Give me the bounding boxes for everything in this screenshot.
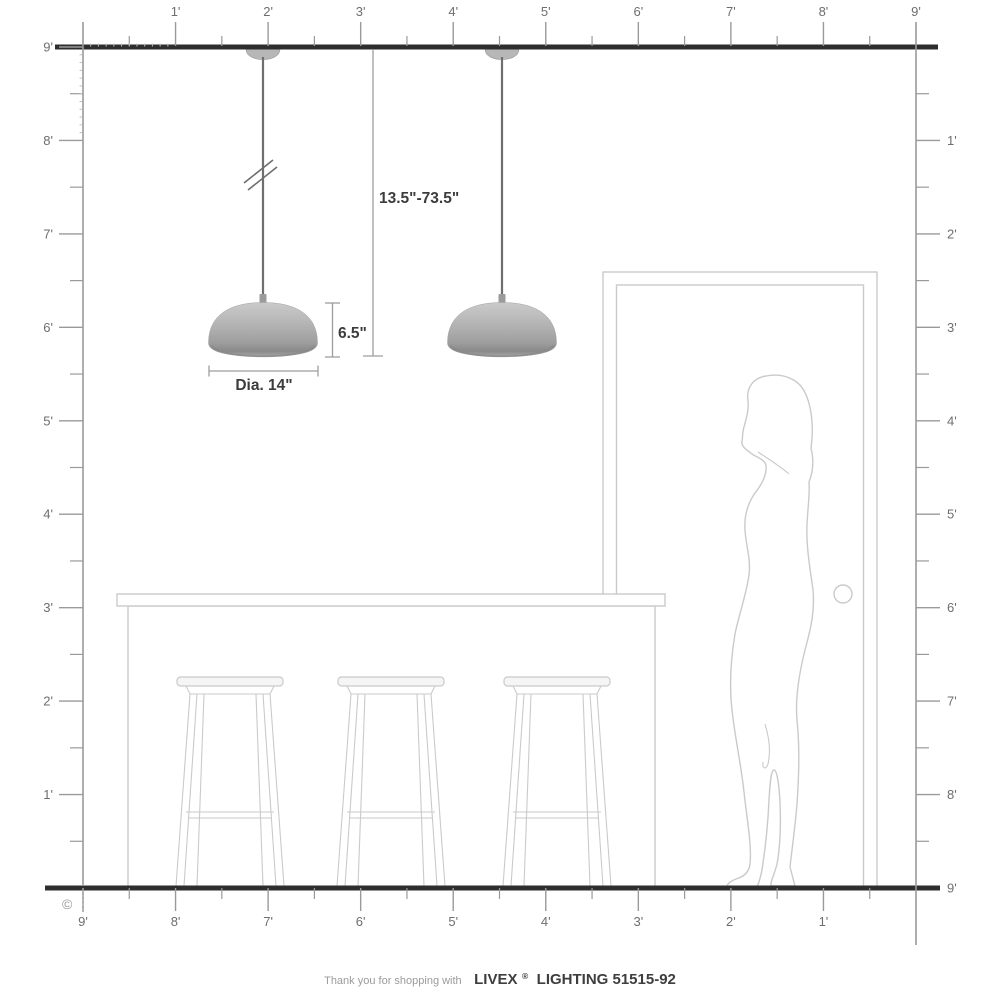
ruler-label: 2' — [263, 4, 273, 19]
product-number: LIGHTING 51515-92 — [537, 971, 676, 988]
ruler-label: 5' — [448, 914, 458, 929]
ruler-label: 8' — [947, 787, 957, 802]
ruler-label: 3' — [43, 600, 53, 615]
ruler-label: 6' — [356, 914, 366, 929]
dimension-diagram-canvas: 13.5"-73.5" 6.5" Dia. 14" 1'2'3'4'5'6'7'… — [0, 0, 1000, 1000]
ruler-label: 6' — [633, 4, 643, 19]
pendant-left — [209, 49, 318, 357]
ruler-label: 2' — [947, 226, 957, 241]
ceiling-line — [55, 45, 938, 50]
ruler-label: 1' — [947, 133, 957, 148]
ruler-label: 9' — [78, 914, 88, 929]
ruler-label: 2' — [726, 914, 736, 929]
ruler-label: 7' — [43, 226, 53, 241]
ruler-label: 2' — [43, 694, 53, 709]
ruler-label: 7' — [263, 914, 273, 929]
shade-diameter-dimension: Dia. 14" — [209, 366, 318, 395]
hang-range-dimension: 13.5"-73.5" — [363, 50, 459, 356]
pendant-right — [448, 49, 557, 357]
caption: Thank you for shopping with LIVEX ® LIGH… — [324, 966, 676, 988]
ruler-label: 3' — [947, 320, 957, 335]
ruler-label: 7' — [726, 4, 736, 19]
ruler-label: 8' — [171, 914, 181, 929]
shade-height-dimension: 6.5" — [325, 303, 367, 357]
registered-mark: ® — [522, 971, 529, 981]
ruler-label: 1' — [171, 4, 181, 19]
ruler-label: 4' — [448, 4, 458, 19]
ruler-label: 8' — [43, 133, 53, 148]
ruler-label: 4' — [947, 413, 957, 428]
ruler-label: 1' — [819, 914, 829, 929]
cord-length-break-icon — [244, 160, 277, 190]
ruler-label: 1' — [43, 787, 53, 802]
island-countertop — [117, 594, 665, 606]
caption-prefix: Thank you for shopping with — [324, 975, 462, 987]
brand-name: LIVEX — [474, 971, 517, 988]
ruler-label: 5' — [947, 507, 957, 522]
ruler-label: 9' — [947, 881, 957, 896]
ruler-label: 6' — [947, 600, 957, 615]
ruler-label: 3' — [633, 914, 643, 929]
ruler-label: 4' — [43, 507, 53, 522]
ruler-label: 3' — [356, 4, 366, 19]
island-cabinet — [128, 606, 655, 888]
ruler-label: 5' — [541, 4, 551, 19]
ruler-label: 5' — [43, 413, 53, 428]
ruler-label: 9' — [43, 40, 53, 55]
copyright-symbol: © — [62, 896, 73, 912]
ruler-label: 8' — [819, 4, 829, 19]
floor-line — [45, 886, 940, 891]
ruler-label: 6' — [43, 320, 53, 335]
ruler-label: 9' — [911, 4, 921, 19]
ruler-label: 7' — [947, 694, 957, 709]
kitchen-island — [117, 594, 665, 888]
ruler-label: 4' — [541, 914, 551, 929]
shade-diameter-label: Dia. 14" — [235, 377, 292, 394]
shade-height-label: 6.5" — [338, 325, 367, 342]
hang-range-label: 13.5"-73.5" — [379, 190, 459, 207]
